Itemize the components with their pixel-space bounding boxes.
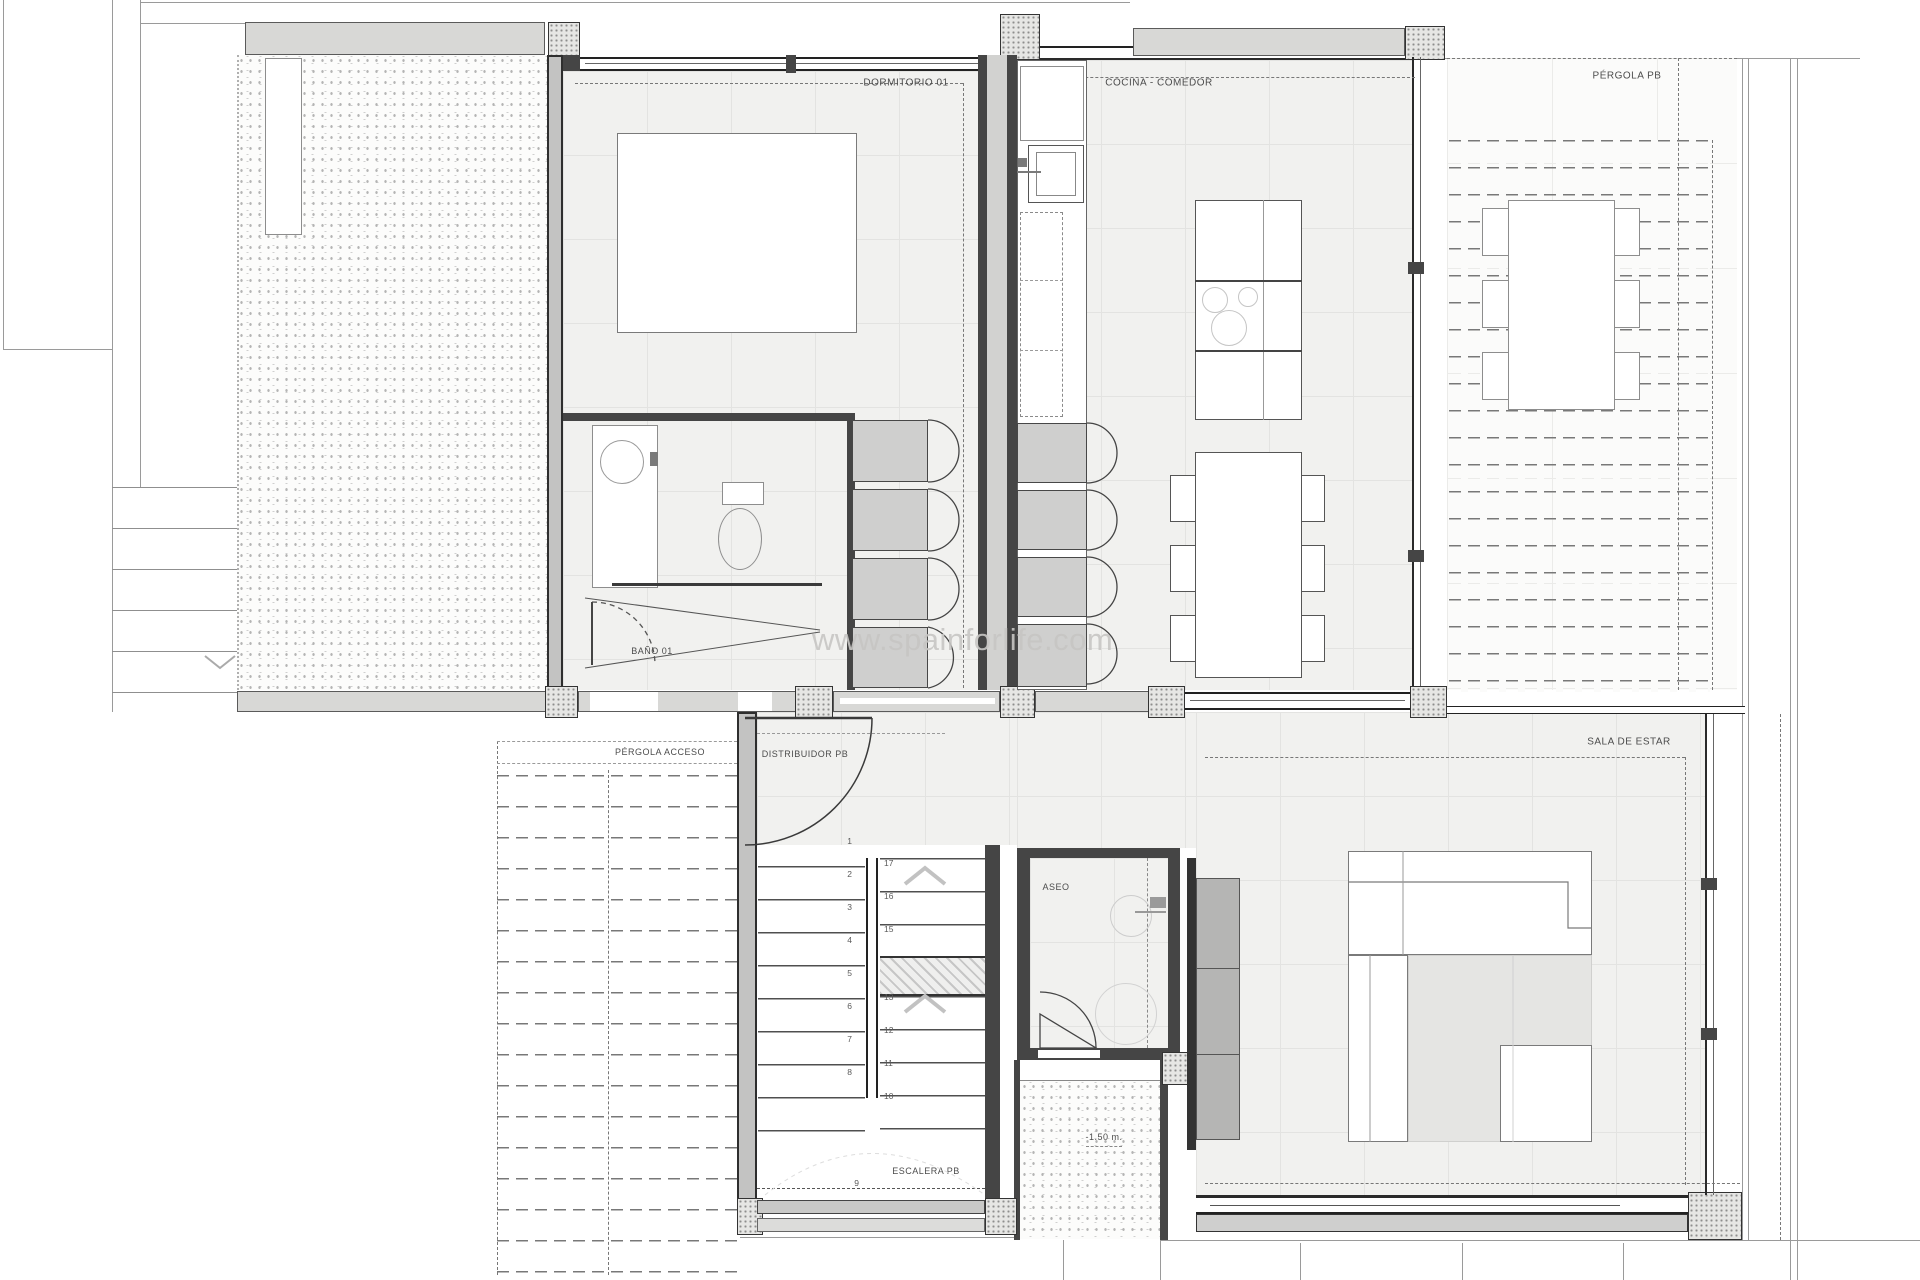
stair-step-number: 16 (884, 891, 904, 924)
stair-step-number: 9 (843, 1178, 859, 1188)
glazing-line (1713, 714, 1714, 1195)
dining-table (1195, 452, 1302, 678)
roof-projection-line (497, 741, 737, 742)
roof-projection-line (1678, 58, 1679, 690)
wall-segment (978, 55, 987, 690)
sofa-chaise (1348, 955, 1408, 1142)
stair-numbers-right-lower: 13121110 (884, 992, 904, 1124)
distribuidor-floor (757, 712, 1017, 845)
hob-ring (1238, 287, 1258, 307)
door-opening (1038, 1050, 1100, 1058)
site-boundary-line (3, 0, 4, 350)
cabinet-divider (1020, 350, 1063, 351)
outdoor-table (1508, 200, 1615, 410)
column (1405, 26, 1445, 60)
faucet (650, 452, 658, 466)
room-label-pergola-acceso: PÉRGOLA ACCESO (615, 747, 705, 757)
wall-west-escalera (737, 712, 757, 1235)
fixture-line (1135, 911, 1166, 913)
wall-west-dormitorio (547, 55, 563, 690)
faucet-arm (1017, 171, 1041, 173)
base-cabinet (1017, 557, 1087, 617)
window-east-sala (1705, 714, 1707, 1195)
window-south-sala (1196, 1198, 1688, 1214)
bed (617, 133, 857, 333)
site-boundary-line (1748, 58, 1749, 1240)
column (545, 686, 578, 718)
site-boundary-tick (1623, 1243, 1624, 1280)
wall-segment (1160, 1060, 1168, 1240)
room-label-aseo: ASEO (1042, 882, 1069, 892)
stair-step-number: 3 (826, 902, 852, 935)
roof-projection-line (1685, 757, 1686, 1185)
site-boundary-tick (1300, 1243, 1301, 1280)
toilet-bowl (718, 508, 762, 570)
toilet-bowl (1110, 895, 1152, 937)
kitchen-appliance (1020, 66, 1084, 141)
glazing-line (1210, 1205, 1620, 1206)
wall-cavity (987, 55, 1007, 690)
room-label-sala: SALA DE ESTAR (1587, 737, 1671, 748)
level-annotation: -1.50 m. (1085, 1132, 1122, 1142)
wall-band (757, 1218, 985, 1232)
wall-east-aseo (1168, 848, 1180, 1060)
shower-screen (612, 583, 822, 586)
site-boundary-line (140, 2, 1130, 3)
stair-step-number: 7 (826, 1034, 852, 1067)
roof-projection-line (963, 83, 964, 688)
site-boundary-tick (1160, 1240, 1161, 1280)
wall-east-escalera (985, 845, 1000, 1235)
parapet-band (1133, 28, 1405, 56)
window-mullion (786, 55, 796, 73)
upper-cabinets (1020, 212, 1063, 417)
island-divider (1195, 350, 1302, 352)
stair-stringer (866, 858, 878, 1098)
column (1148, 686, 1185, 718)
door-opening (590, 692, 658, 711)
base-cabinet (1017, 490, 1087, 550)
glazing-core (840, 698, 995, 704)
site-boundary-tick (1462, 1243, 1463, 1280)
stair-break-line (757, 1188, 985, 1189)
level-annotation-underline (1086, 1146, 1122, 1147)
distribuidor-floor (1017, 712, 1196, 848)
roof-projection-line (1712, 140, 1713, 690)
wall-corner (563, 55, 580, 71)
stair-step-number: 1 (826, 836, 852, 869)
window-mullion (1408, 262, 1424, 274)
column (1000, 14, 1040, 60)
site-boundary-tick (1063, 1240, 1064, 1280)
room-label-pergola-pb: PÉRGOLA PB (1593, 71, 1662, 82)
hob-ring (1211, 310, 1247, 346)
site-boundary-line (140, 0, 141, 487)
room-label-escalera: ESCALERA PB (892, 1166, 960, 1176)
roof-projection-line (1780, 714, 1781, 1240)
island-divider (1195, 280, 1302, 282)
exterior-steps (112, 487, 237, 697)
stair-numbers-right-upper: 171615 (884, 858, 904, 957)
stair-break-hatch (880, 956, 985, 996)
pergola-acceso-slats (497, 775, 737, 1275)
stair-step-number: 2 (826, 869, 852, 902)
gravel-patio (1020, 1080, 1162, 1239)
room-label-dormitorio: DORMITORIO 01 (863, 78, 948, 89)
stair-step-number: 8 (826, 1067, 852, 1100)
wall-band (1035, 691, 1150, 712)
media-unit (1196, 878, 1240, 1140)
sink-basin (600, 440, 644, 484)
wall-west-aseo (1017, 848, 1030, 1060)
stair-step-number: 17 (884, 858, 904, 891)
wall-band (757, 1200, 985, 1214)
sofa (1348, 851, 1592, 955)
toilet-tank (1150, 897, 1166, 908)
window-mullion (1701, 878, 1717, 890)
window-mullion (1408, 550, 1424, 562)
floor-plan: 12345678 171615 13121110 9 DORMITORIO 01… (0, 0, 1920, 1280)
closet-unit (852, 420, 928, 482)
room-label-bano: BAÑO 01 (631, 646, 673, 656)
site-boundary-line (1797, 58, 1798, 1280)
site-boundary-line (1742, 58, 1743, 1240)
stair-step-number: 5 (826, 968, 852, 1001)
roof-projection-line (497, 741, 498, 1275)
roof-projection-line (757, 733, 945, 734)
window-mullion (1701, 1028, 1717, 1040)
site-boundary-line (3, 349, 112, 350)
site-boundary-line (1790, 58, 1791, 1280)
coffee-table (1500, 1045, 1592, 1142)
island-divider (1263, 200, 1264, 420)
watermark: www.spainforlife.com (812, 622, 1113, 658)
window-east-cocina (1412, 57, 1414, 690)
toilet-tank (722, 482, 764, 505)
terrace-boundary-dotted (237, 55, 239, 690)
stair-numbers-left: 12345678 (826, 836, 852, 1100)
column (795, 686, 833, 718)
glazing-line (1190, 700, 1405, 701)
wall-line (1040, 58, 1405, 60)
stair-step-number: 11 (884, 1058, 904, 1091)
cabinet-divider (1020, 280, 1063, 281)
stair-step-number: 6 (826, 1001, 852, 1034)
stair-step-number: 4 (826, 935, 852, 968)
base-cabinet (1017, 423, 1087, 483)
column (1410, 686, 1447, 718)
kitchen-sink-basin (1036, 152, 1076, 196)
wall-bano-north (563, 413, 855, 421)
parapet-band (245, 22, 545, 55)
closet-unit (852, 489, 928, 551)
column (1688, 1192, 1742, 1240)
roof-projection-line (1447, 58, 1737, 59)
stair-step-number: 10 (884, 1091, 904, 1124)
site-boundary-line (140, 23, 245, 24)
column (1000, 686, 1035, 718)
wall-band (1196, 1214, 1688, 1232)
stair-step-number: 15 (884, 924, 904, 957)
planter (265, 58, 302, 235)
glazing-line (1420, 57, 1421, 690)
roof-projection-line (608, 770, 609, 1275)
pergola-edge-beam (1447, 706, 1745, 714)
room-label-cocina: COCINA - COMEDOR (1105, 78, 1212, 89)
door-opening (738, 692, 772, 711)
roof-projection-line (1205, 1183, 1740, 1184)
roof-projection-line (497, 763, 737, 764)
roof-projection-line (1205, 757, 1685, 758)
site-boundary-line (740, 1237, 1035, 1238)
site-boundary-line (1160, 1240, 1920, 1241)
hob-ring (1202, 287, 1228, 313)
closet-unit (852, 558, 928, 620)
column (548, 22, 580, 58)
sink-basin (1095, 983, 1157, 1045)
column (985, 1198, 1017, 1235)
wall-segment (1007, 55, 1017, 690)
wall-band (237, 691, 547, 712)
media-unit-divider (1196, 968, 1240, 969)
faucet (1018, 158, 1027, 167)
roof-projection-line (1035, 77, 1415, 78)
wall-north-aseo (1030, 848, 1180, 858)
stair-step-number: 12 (884, 1025, 904, 1058)
room-label-distribuidor: DISTRIBUIDOR PB (762, 749, 849, 759)
stair-step-number: 13 (884, 992, 904, 1025)
window-north-sala (1185, 692, 1410, 710)
wall-segment (1187, 858, 1196, 1150)
media-unit-divider (1196, 1054, 1240, 1055)
